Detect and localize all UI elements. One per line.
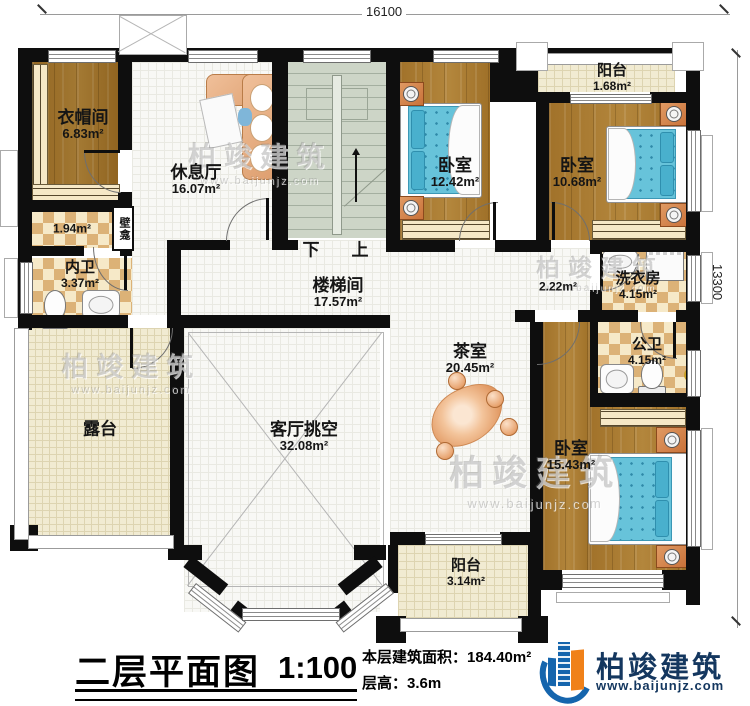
wall-segment xyxy=(386,240,455,252)
room-label-bedroom-top-right: 卧室 10.68m² xyxy=(553,156,601,190)
blanket xyxy=(608,128,636,200)
pillow xyxy=(655,461,669,498)
nightstand xyxy=(398,196,424,220)
lamp-icon xyxy=(403,200,419,216)
window-sill xyxy=(701,252,713,304)
wall-segment xyxy=(167,240,230,250)
sheet-title: 二层平面图 xyxy=(75,644,260,695)
room-label-public-bath: 公卫 4.15m² xyxy=(628,337,666,367)
floor-height-text: 层高：3.6m xyxy=(362,672,441,693)
window xyxy=(687,130,701,212)
room-label-bedroom-top-left: 卧室 12.42m² xyxy=(431,156,479,190)
room-label-closet: 1.94m² xyxy=(53,222,91,235)
wall-segment xyxy=(536,92,549,240)
stool xyxy=(500,418,518,436)
sliding-door xyxy=(425,534,502,545)
window-sill xyxy=(556,592,670,603)
dimension-tick xyxy=(731,48,741,58)
bay-window xyxy=(242,608,340,621)
stool xyxy=(436,442,454,460)
lamp-icon xyxy=(664,549,680,565)
wall-segment xyxy=(590,393,686,407)
closet-hatch xyxy=(600,409,686,427)
stool xyxy=(486,390,504,408)
sink-basin xyxy=(606,370,628,389)
dimension-top-label: 16100 xyxy=(362,4,406,19)
room-label-niche: 壁龛 xyxy=(112,206,134,251)
floor-area-text: 本层建筑面积：184.40m² xyxy=(362,646,531,667)
title-underline xyxy=(75,689,357,701)
window xyxy=(188,50,258,63)
door-leaf xyxy=(535,322,538,364)
wall-segment xyxy=(184,315,390,328)
nightstand xyxy=(660,102,688,126)
wall-segment xyxy=(170,328,184,548)
wall-segment xyxy=(662,570,700,590)
room-label-stair-hall: 楼梯间 17.57m² xyxy=(313,276,364,310)
closet-hatch xyxy=(32,64,48,204)
door-leaf xyxy=(84,150,120,153)
pillow xyxy=(655,500,669,537)
wall-segment xyxy=(590,290,602,312)
room-label-terrace: 露台 xyxy=(83,419,117,438)
terrace-railing xyxy=(14,328,29,540)
stairs-up-label: 上 xyxy=(352,240,369,259)
room-label-inner-bath: 内卫 3.37m² xyxy=(61,260,99,290)
wall-segment xyxy=(676,310,686,322)
room-label-nook: 2.22m² xyxy=(539,280,577,293)
wall-segment xyxy=(549,92,570,103)
wall-segment xyxy=(590,322,598,393)
room-label-lounge: 休息厅 16.07m² xyxy=(171,163,222,197)
window-sill xyxy=(701,135,713,212)
sheet-scale: 1:100 xyxy=(278,650,357,686)
wall-segment xyxy=(590,310,638,322)
stair-rail xyxy=(332,75,342,235)
window xyxy=(687,430,701,547)
floor-area-label: 本层建筑面积： xyxy=(362,649,467,666)
door-leaf xyxy=(600,254,603,290)
room-label-balcony-top: 阳台 1.68m² xyxy=(593,63,631,93)
pillow xyxy=(660,165,674,196)
nightstand xyxy=(660,203,688,227)
logo-bar-blue xyxy=(558,642,570,686)
door-leaf xyxy=(552,202,555,240)
stair-direction-line xyxy=(355,154,357,202)
pilaster xyxy=(672,42,704,71)
lamp-icon xyxy=(666,207,682,223)
window xyxy=(687,350,701,397)
door-leaf xyxy=(673,322,676,358)
room-label-tea-room: 茶室 20.45m² xyxy=(446,342,494,376)
door-leaf xyxy=(130,328,133,368)
brand-logo-icon xyxy=(540,638,590,698)
nightstand xyxy=(656,427,687,453)
floor-height-value: 3.6m xyxy=(407,675,441,692)
wall-segment xyxy=(172,315,184,328)
wall-segment xyxy=(578,310,590,322)
balcony-railing xyxy=(400,618,522,632)
wall-segment xyxy=(590,240,686,252)
window-sill xyxy=(4,258,18,318)
wall-segment xyxy=(18,315,128,328)
pillow xyxy=(411,110,425,149)
lamp-icon xyxy=(403,86,419,102)
door-leaf xyxy=(124,247,127,290)
wall-segment xyxy=(390,532,425,545)
wall-segment xyxy=(515,310,535,322)
sink-icon xyxy=(600,364,634,394)
sofa-cushion xyxy=(250,84,274,112)
room-label-balcony-bottom: 阳台 3.14m² xyxy=(447,558,485,588)
nightstand xyxy=(656,545,687,568)
wall-segment xyxy=(272,62,288,240)
window xyxy=(20,262,33,314)
pilaster xyxy=(516,42,548,71)
floor-area-value: 184.40m² xyxy=(467,649,531,666)
window-sill xyxy=(701,428,713,550)
window-sill xyxy=(0,150,18,227)
window xyxy=(303,50,371,63)
brand-website: www.baijunjz.com xyxy=(596,678,724,693)
door-leaf xyxy=(493,202,496,240)
door-leaf xyxy=(266,198,269,240)
pillow xyxy=(411,151,425,190)
nightstand xyxy=(398,82,424,106)
room-label-living-void: 客厅挑空 32.08m² xyxy=(270,420,338,454)
sofa-cushion xyxy=(250,114,274,142)
room-label-laundry: 洗衣房 4.15m² xyxy=(615,271,660,301)
wall-segment xyxy=(541,570,562,590)
window xyxy=(562,574,664,588)
lamp-icon xyxy=(666,106,682,122)
room-label-cloakroom: 衣帽间 6.83m² xyxy=(58,108,109,142)
sliding-door xyxy=(570,94,652,104)
wall-segment xyxy=(272,240,298,250)
wall-segment xyxy=(386,62,400,252)
logo-bar-small xyxy=(548,658,556,687)
floor-height-label: 层高： xyxy=(362,675,407,692)
logo-bar-orange xyxy=(571,649,584,690)
dimension-tick xyxy=(37,4,47,14)
person-figure xyxy=(238,108,252,126)
stairs-down-label: 下 xyxy=(303,240,320,259)
window xyxy=(433,50,499,63)
room-label-bedroom-bottom: 卧室 15.43m² xyxy=(547,439,595,473)
wall-segment xyxy=(28,246,84,256)
wall-segment xyxy=(388,545,398,593)
lamp-icon xyxy=(664,432,680,448)
sink-basin xyxy=(88,295,113,313)
wall-segment xyxy=(528,532,541,620)
sofa-cushion xyxy=(250,144,274,172)
dimension-tick xyxy=(731,616,741,626)
terrace-railing xyxy=(28,535,174,549)
window xyxy=(48,50,116,63)
pillow xyxy=(660,132,674,163)
wall-segment xyxy=(650,92,686,103)
wall-segment xyxy=(118,62,132,150)
dimension-line-right xyxy=(737,50,738,628)
floor-plan-sheet: 16100 13300 xyxy=(0,0,750,706)
window xyxy=(687,255,701,302)
dimension-tick xyxy=(719,4,729,14)
wall-segment xyxy=(495,240,551,252)
